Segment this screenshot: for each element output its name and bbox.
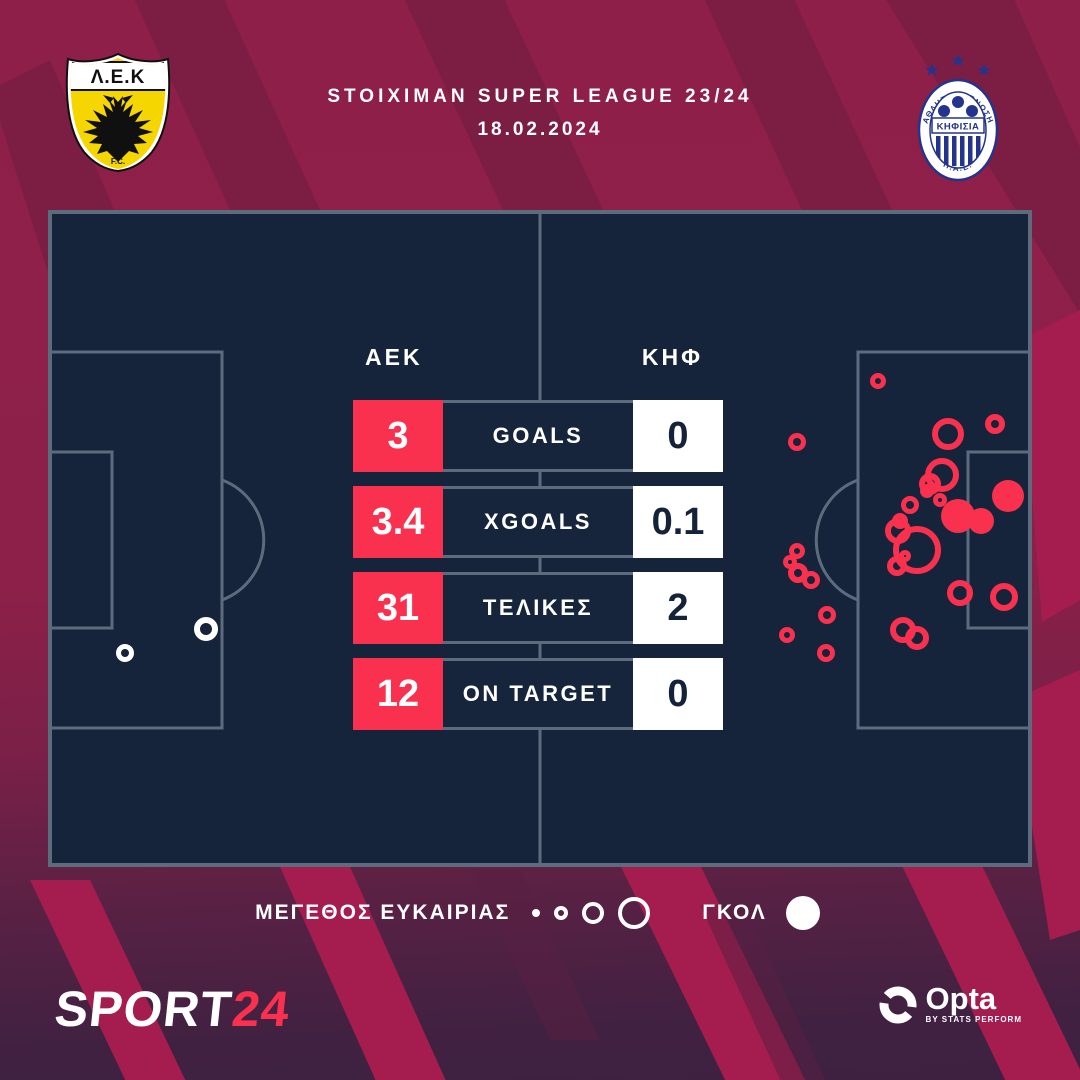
legend-goal-label: ΓΚΟΛ (702, 901, 767, 925)
match-infographic: STOIXIMAN SUPER LEAGUE 23/24 18.02.2024 … (0, 0, 1080, 1080)
sport24-logo: SPORT24 (52, 980, 293, 1038)
goal-marker (968, 508, 994, 534)
legend-size-circle (584, 904, 602, 922)
opta-logo: Opta BY STATS PERFORM (878, 982, 1022, 1028)
stat-row-goals: 3 GOALS 0 (353, 400, 723, 472)
aek-crest-sub: F.C. (111, 157, 125, 166)
aek-crest-initials: Λ.Ε.Κ (91, 67, 146, 88)
home-value: 12 (353, 658, 443, 730)
legend-size-circle (620, 899, 648, 927)
stat-row-xgoals: 3.4 XGOALS 0.1 (353, 486, 723, 558)
home-team-label: AEK (365, 344, 423, 371)
stat-label: ΤΕΛΙΚΕΣ (443, 572, 633, 644)
opta-name: Opta (926, 984, 1022, 1014)
chance-size-scale (530, 891, 656, 935)
opta-icon (878, 982, 918, 1028)
stat-row-shots: 31 ΤΕΛΙΚΕΣ 2 (353, 572, 723, 644)
sport24-logo-accent: 24 (229, 981, 293, 1037)
stat-row-on-target: 12 ON TARGET 0 (353, 658, 723, 730)
opta-subtitle: BY STATS PERFORM (926, 1015, 1022, 1024)
legend-size-label: ΜΕΓΕΘΟΣ ΕΥΚΑΙΡΙΑΣ (255, 901, 510, 925)
legend-size-circle (532, 909, 540, 917)
away-team-label: ΚΗΦ (642, 344, 703, 371)
sport24-logo-text: SPORT (52, 981, 235, 1037)
home-value: 3 (353, 400, 443, 472)
stat-label: XGOALS (443, 486, 633, 558)
kifisia-crest: ΑΘΛΗΤΙΚΗ ΕΝΩΣΗ Π.Α.Ε. ΚΗΦΙΣΙΑ (908, 52, 1008, 182)
home-value: 31 (353, 572, 443, 644)
away-value: 0.1 (633, 486, 723, 558)
goal-marker-sample (781, 891, 825, 935)
stat-label: ON TARGET (443, 658, 633, 730)
stat-label: GOALS (443, 400, 633, 472)
legend: ΜΕΓΕΘΟΣ ΕΥΚΑΙΡΙΑΣ ΓΚΟΛ (0, 888, 1080, 938)
stats-panel: AEK ΚΗΦ 3 GOALS 0 3.4 XGOALS 0.1 31 ΤΕΛΙ… (353, 338, 723, 730)
goal-marker (992, 480, 1024, 512)
home-value: 3.4 (353, 486, 443, 558)
away-value: 0 (633, 400, 723, 472)
legend-goal-circle (786, 896, 820, 930)
kifisia-crest-name: ΚΗΦΙΣΙΑ (937, 122, 980, 133)
kifisia-stars (925, 54, 991, 76)
away-value: 0 (633, 658, 723, 730)
aek-crest: Λ.Ε.Κ F.C. (63, 50, 173, 174)
away-value: 2 (633, 572, 723, 644)
legend-size-circle (556, 908, 566, 918)
